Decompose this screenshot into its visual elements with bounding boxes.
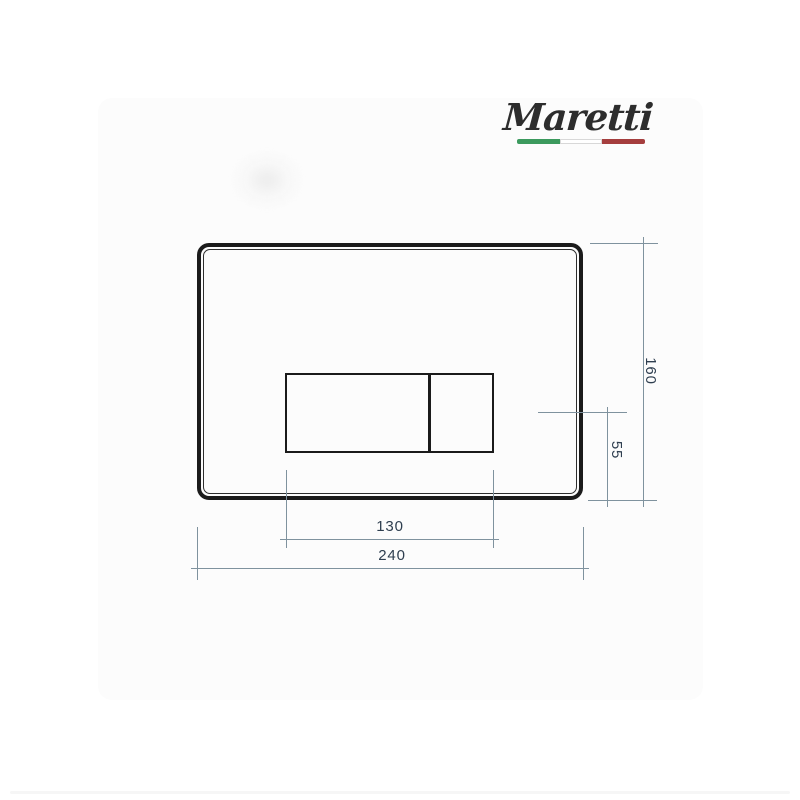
dim-160-extension-bottom [588, 500, 657, 501]
image-bottom-edge [10, 791, 790, 794]
dim-130-extension-left [286, 470, 287, 548]
brand-logo: Maretti [498, 94, 658, 150]
dim-240-line [191, 568, 589, 569]
dim-130-extension-right [493, 470, 494, 548]
button-divider-line [428, 375, 431, 451]
dim-55-label: 55 [606, 435, 626, 465]
dim-55-extension-top [538, 412, 627, 413]
dim-240-extension-right [583, 527, 584, 580]
flag-green-stripe [517, 139, 560, 144]
flag-red-stripe [602, 139, 645, 144]
dim-240-extension-left [197, 527, 198, 580]
dim-160-label: 160 [640, 351, 660, 391]
dim-240-label: 240 [357, 547, 427, 564]
product-image: Maretti 160 55 130 240 [0, 0, 800, 800]
flush-plate-outline [197, 243, 583, 500]
flag-white-stripe [560, 139, 603, 144]
flush-plate-inner-outline [203, 249, 577, 494]
flush-buttons-outline [285, 373, 494, 453]
dim-130-label: 130 [355, 518, 425, 535]
watermark-smudge [228, 148, 306, 212]
brand-logo-text: Maretti [496, 94, 659, 140]
dim-130-line [280, 539, 499, 540]
dim-160-extension-top [590, 243, 658, 244]
italian-flag-icon [517, 139, 645, 144]
